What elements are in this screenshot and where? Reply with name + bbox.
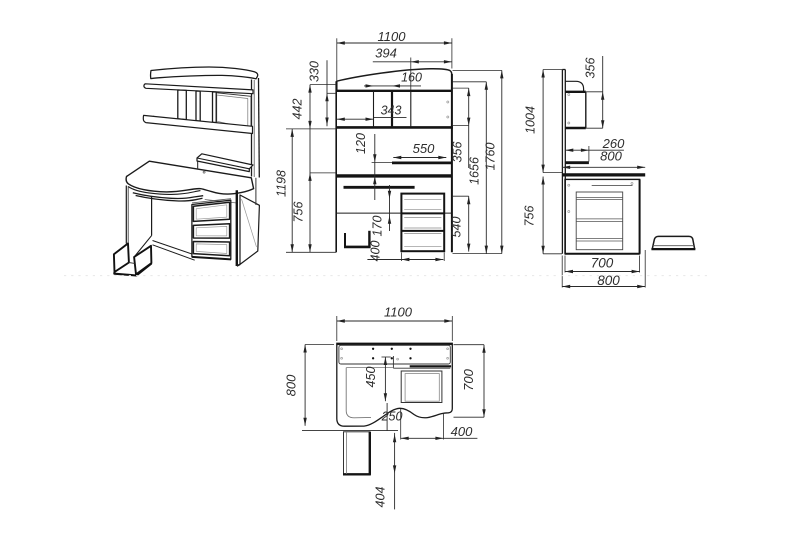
svg-text:330: 330 (308, 61, 322, 82)
svg-text:250: 250 (381, 410, 403, 424)
svg-text:1760: 1760 (484, 143, 498, 171)
svg-text:400: 400 (451, 424, 473, 439)
svg-text:700: 700 (461, 368, 476, 390)
svg-text:550: 550 (413, 141, 435, 156)
svg-text:356: 356 (584, 58, 598, 79)
svg-text:756: 756 (523, 206, 537, 227)
svg-text:404: 404 (374, 487, 388, 508)
svg-text:1198: 1198 (275, 170, 289, 197)
svg-text:120: 120 (354, 133, 368, 154)
svg-text:1100: 1100 (384, 305, 413, 320)
svg-text:450: 450 (364, 367, 378, 388)
svg-text:1004: 1004 (524, 106, 538, 134)
svg-text:800: 800 (597, 273, 620, 288)
svg-text:343: 343 (381, 104, 402, 118)
svg-text:400: 400 (369, 241, 383, 262)
svg-text:1100: 1100 (378, 29, 407, 44)
svg-text:700: 700 (591, 256, 614, 271)
svg-text:160: 160 (401, 71, 422, 85)
svg-text:540: 540 (450, 217, 464, 238)
svg-text:800: 800 (600, 149, 622, 164)
svg-text:800: 800 (284, 374, 299, 396)
svg-text:1656: 1656 (468, 157, 482, 185)
svg-text:170: 170 (371, 216, 385, 237)
svg-text:394: 394 (375, 46, 397, 61)
svg-text:442: 442 (291, 99, 305, 120)
svg-text:756: 756 (292, 202, 306, 223)
svg-text:356: 356 (451, 142, 465, 163)
